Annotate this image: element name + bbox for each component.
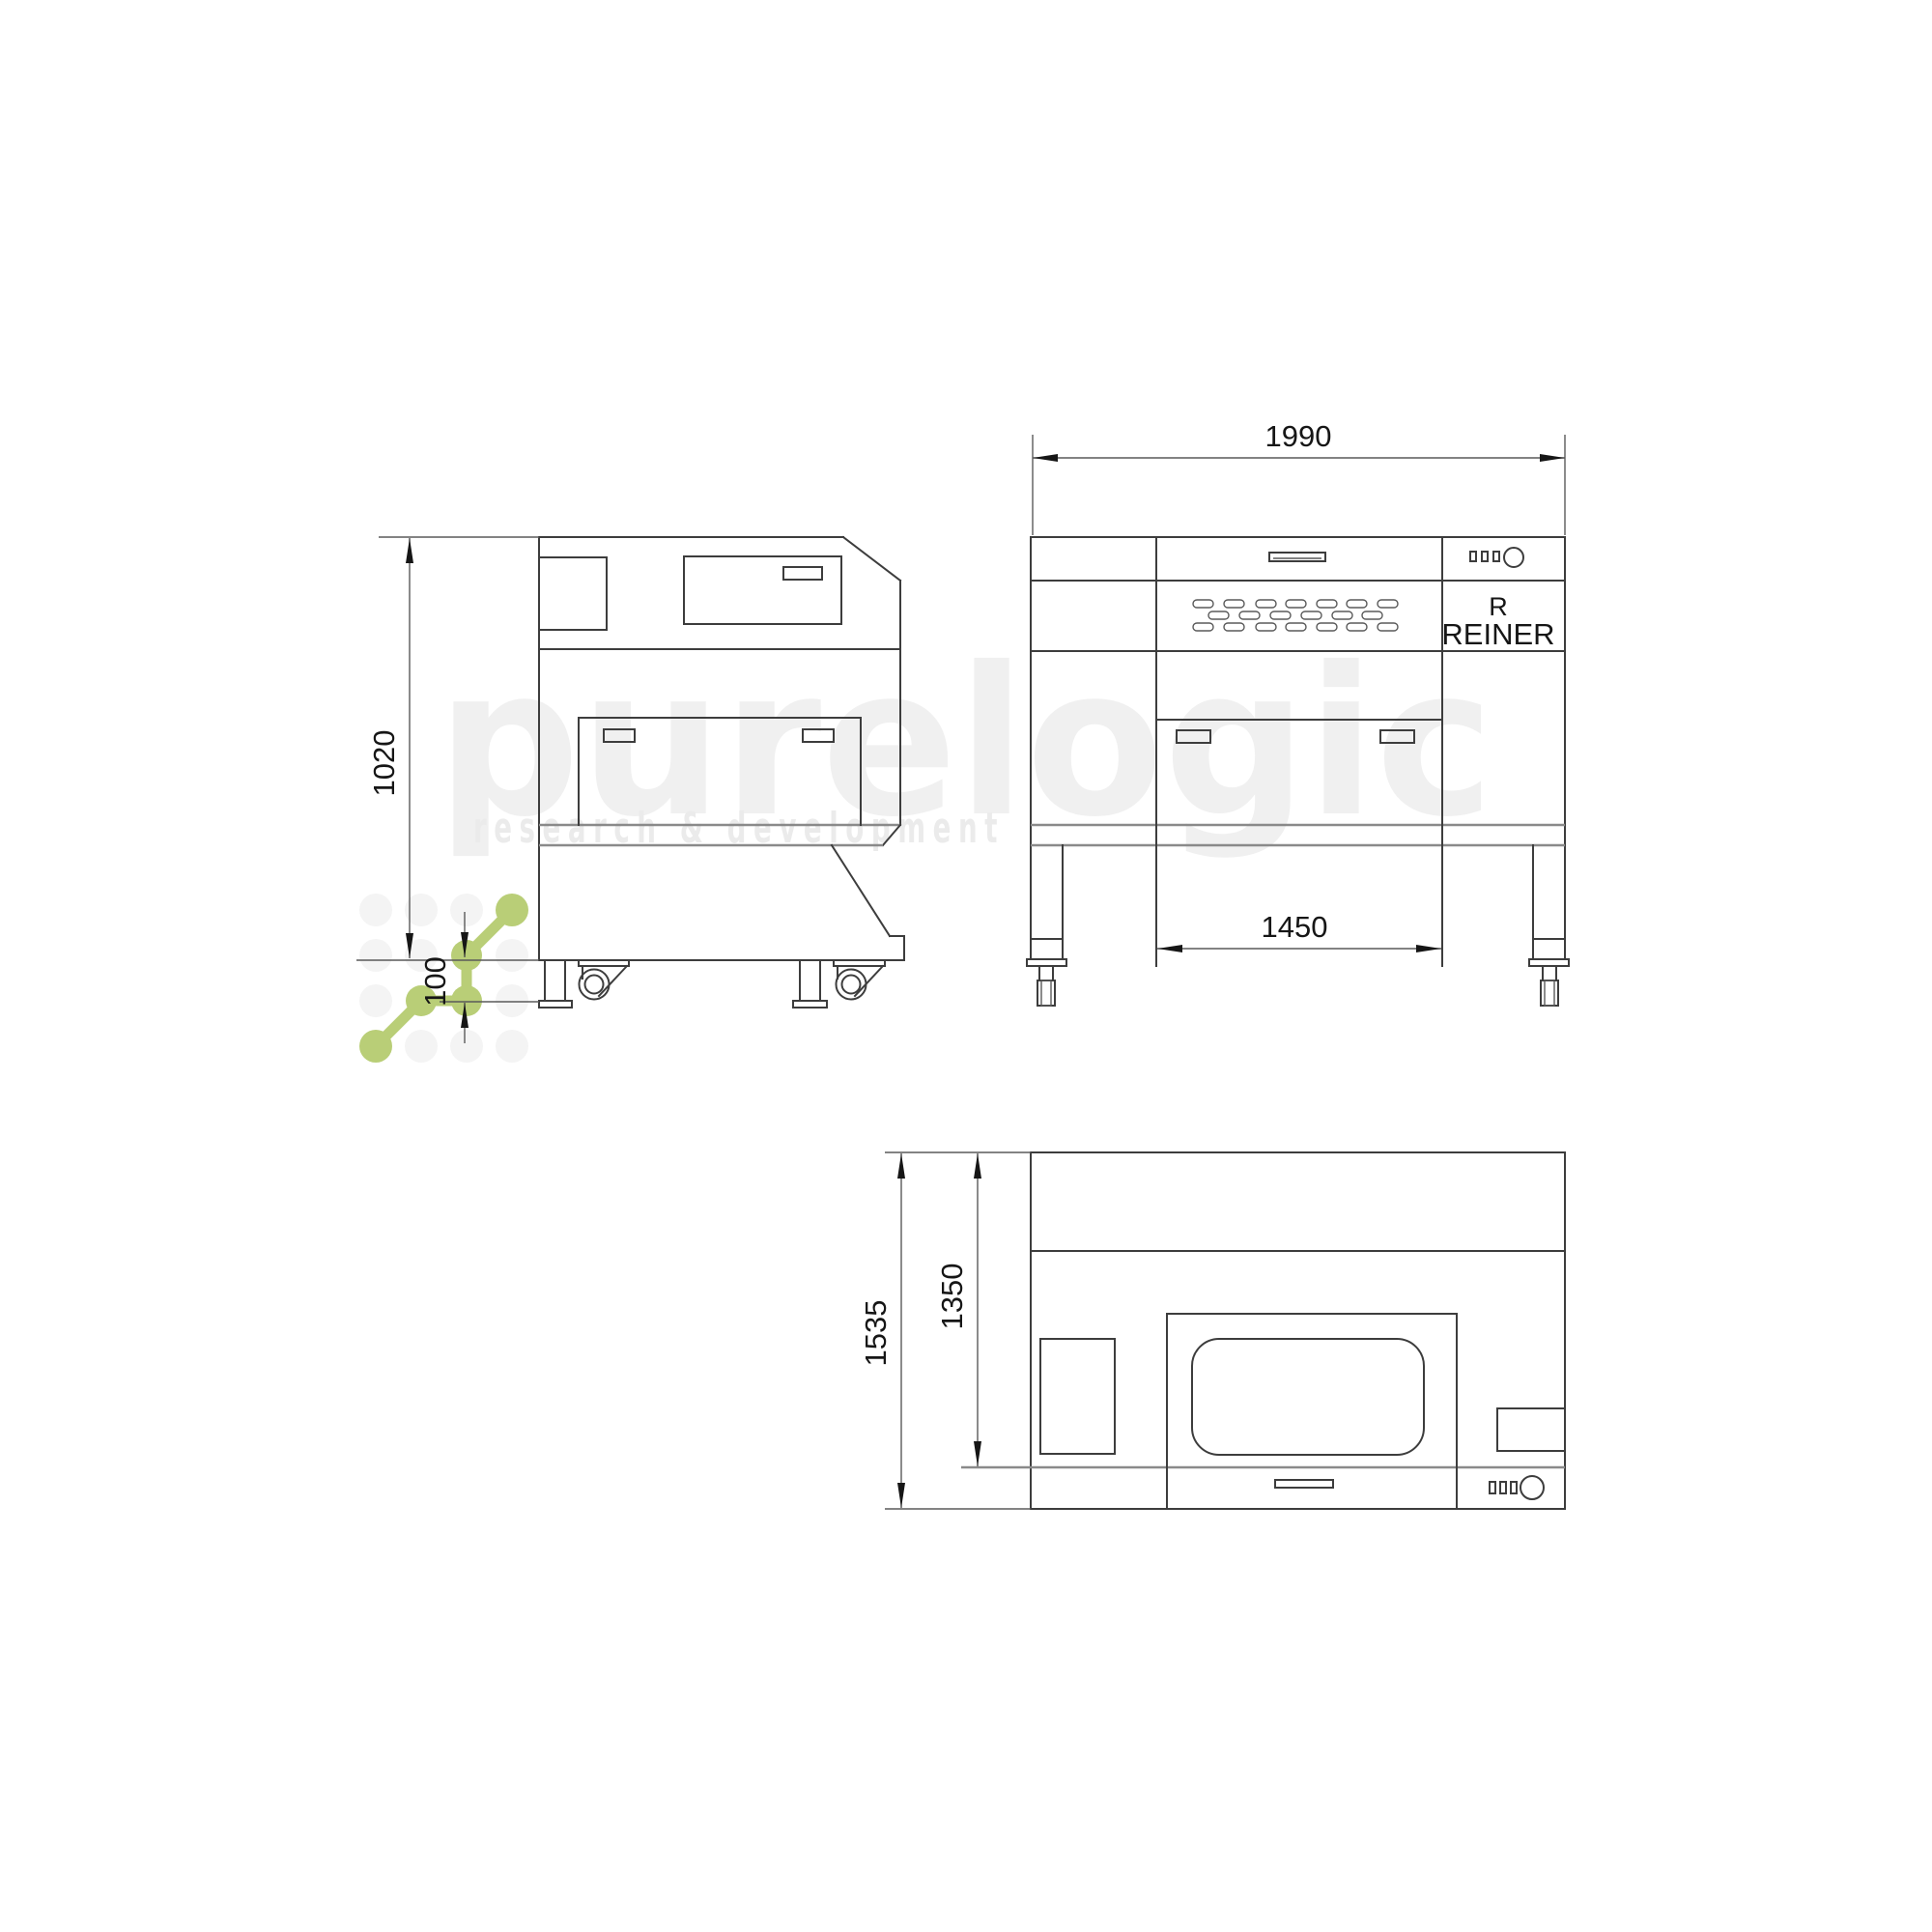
front-leg-left xyxy=(1027,845,1066,1006)
side-left-panel xyxy=(539,557,607,630)
dim-top-depth-total: 1535 xyxy=(859,1152,1031,1509)
indicator-light xyxy=(1500,1482,1506,1493)
side-caster-left xyxy=(579,960,629,1000)
dim-1020-label: 1020 xyxy=(367,730,401,797)
top-left-unit xyxy=(1040,1339,1115,1454)
power-button xyxy=(1504,548,1523,567)
dim-foot-height: 100 xyxy=(418,912,539,1043)
dim-100-label: 100 xyxy=(418,956,452,1007)
dim-1535-label: 1535 xyxy=(859,1300,893,1367)
power-button xyxy=(1520,1476,1544,1499)
brand-logo: R REINER xyxy=(1441,592,1554,651)
top-right-unit xyxy=(1497,1408,1565,1451)
brand-name: REINER xyxy=(1441,617,1554,651)
side-foot-left xyxy=(539,960,572,1008)
technical-drawing: purelogic research & development xyxy=(0,0,1932,1932)
watermark: purelogic research & development xyxy=(359,623,1494,1063)
dim-front-span: 1450 xyxy=(1157,910,1441,952)
top-front-slot xyxy=(1275,1480,1333,1488)
front-top-slot xyxy=(1269,553,1325,561)
indicator-light xyxy=(1470,552,1476,561)
front-control-panel xyxy=(1470,548,1523,567)
front-leg-right xyxy=(1529,845,1569,1006)
indicator-light xyxy=(1511,1482,1517,1493)
dim-top-depth-body: 1350 xyxy=(935,1153,981,1466)
drawing-canvas: purelogic research & development xyxy=(0,0,1932,1932)
dim-1990-label: 1990 xyxy=(1265,419,1332,453)
indicator-light xyxy=(1493,552,1499,561)
dim-front-width: 1990 xyxy=(1033,419,1565,535)
side-foot-right xyxy=(793,960,827,1008)
top-control-panel xyxy=(1490,1476,1544,1499)
side-top-window-latch xyxy=(783,567,822,580)
dim-1450-label: 1450 xyxy=(1262,910,1328,944)
side-caster-right xyxy=(834,960,885,1000)
top-lid-window xyxy=(1192,1339,1424,1455)
indicator-light xyxy=(1482,552,1488,561)
dim-1350-label: 1350 xyxy=(935,1264,969,1330)
indicator-light xyxy=(1490,1482,1495,1493)
top-view: 1535 1350 xyxy=(859,1152,1565,1509)
